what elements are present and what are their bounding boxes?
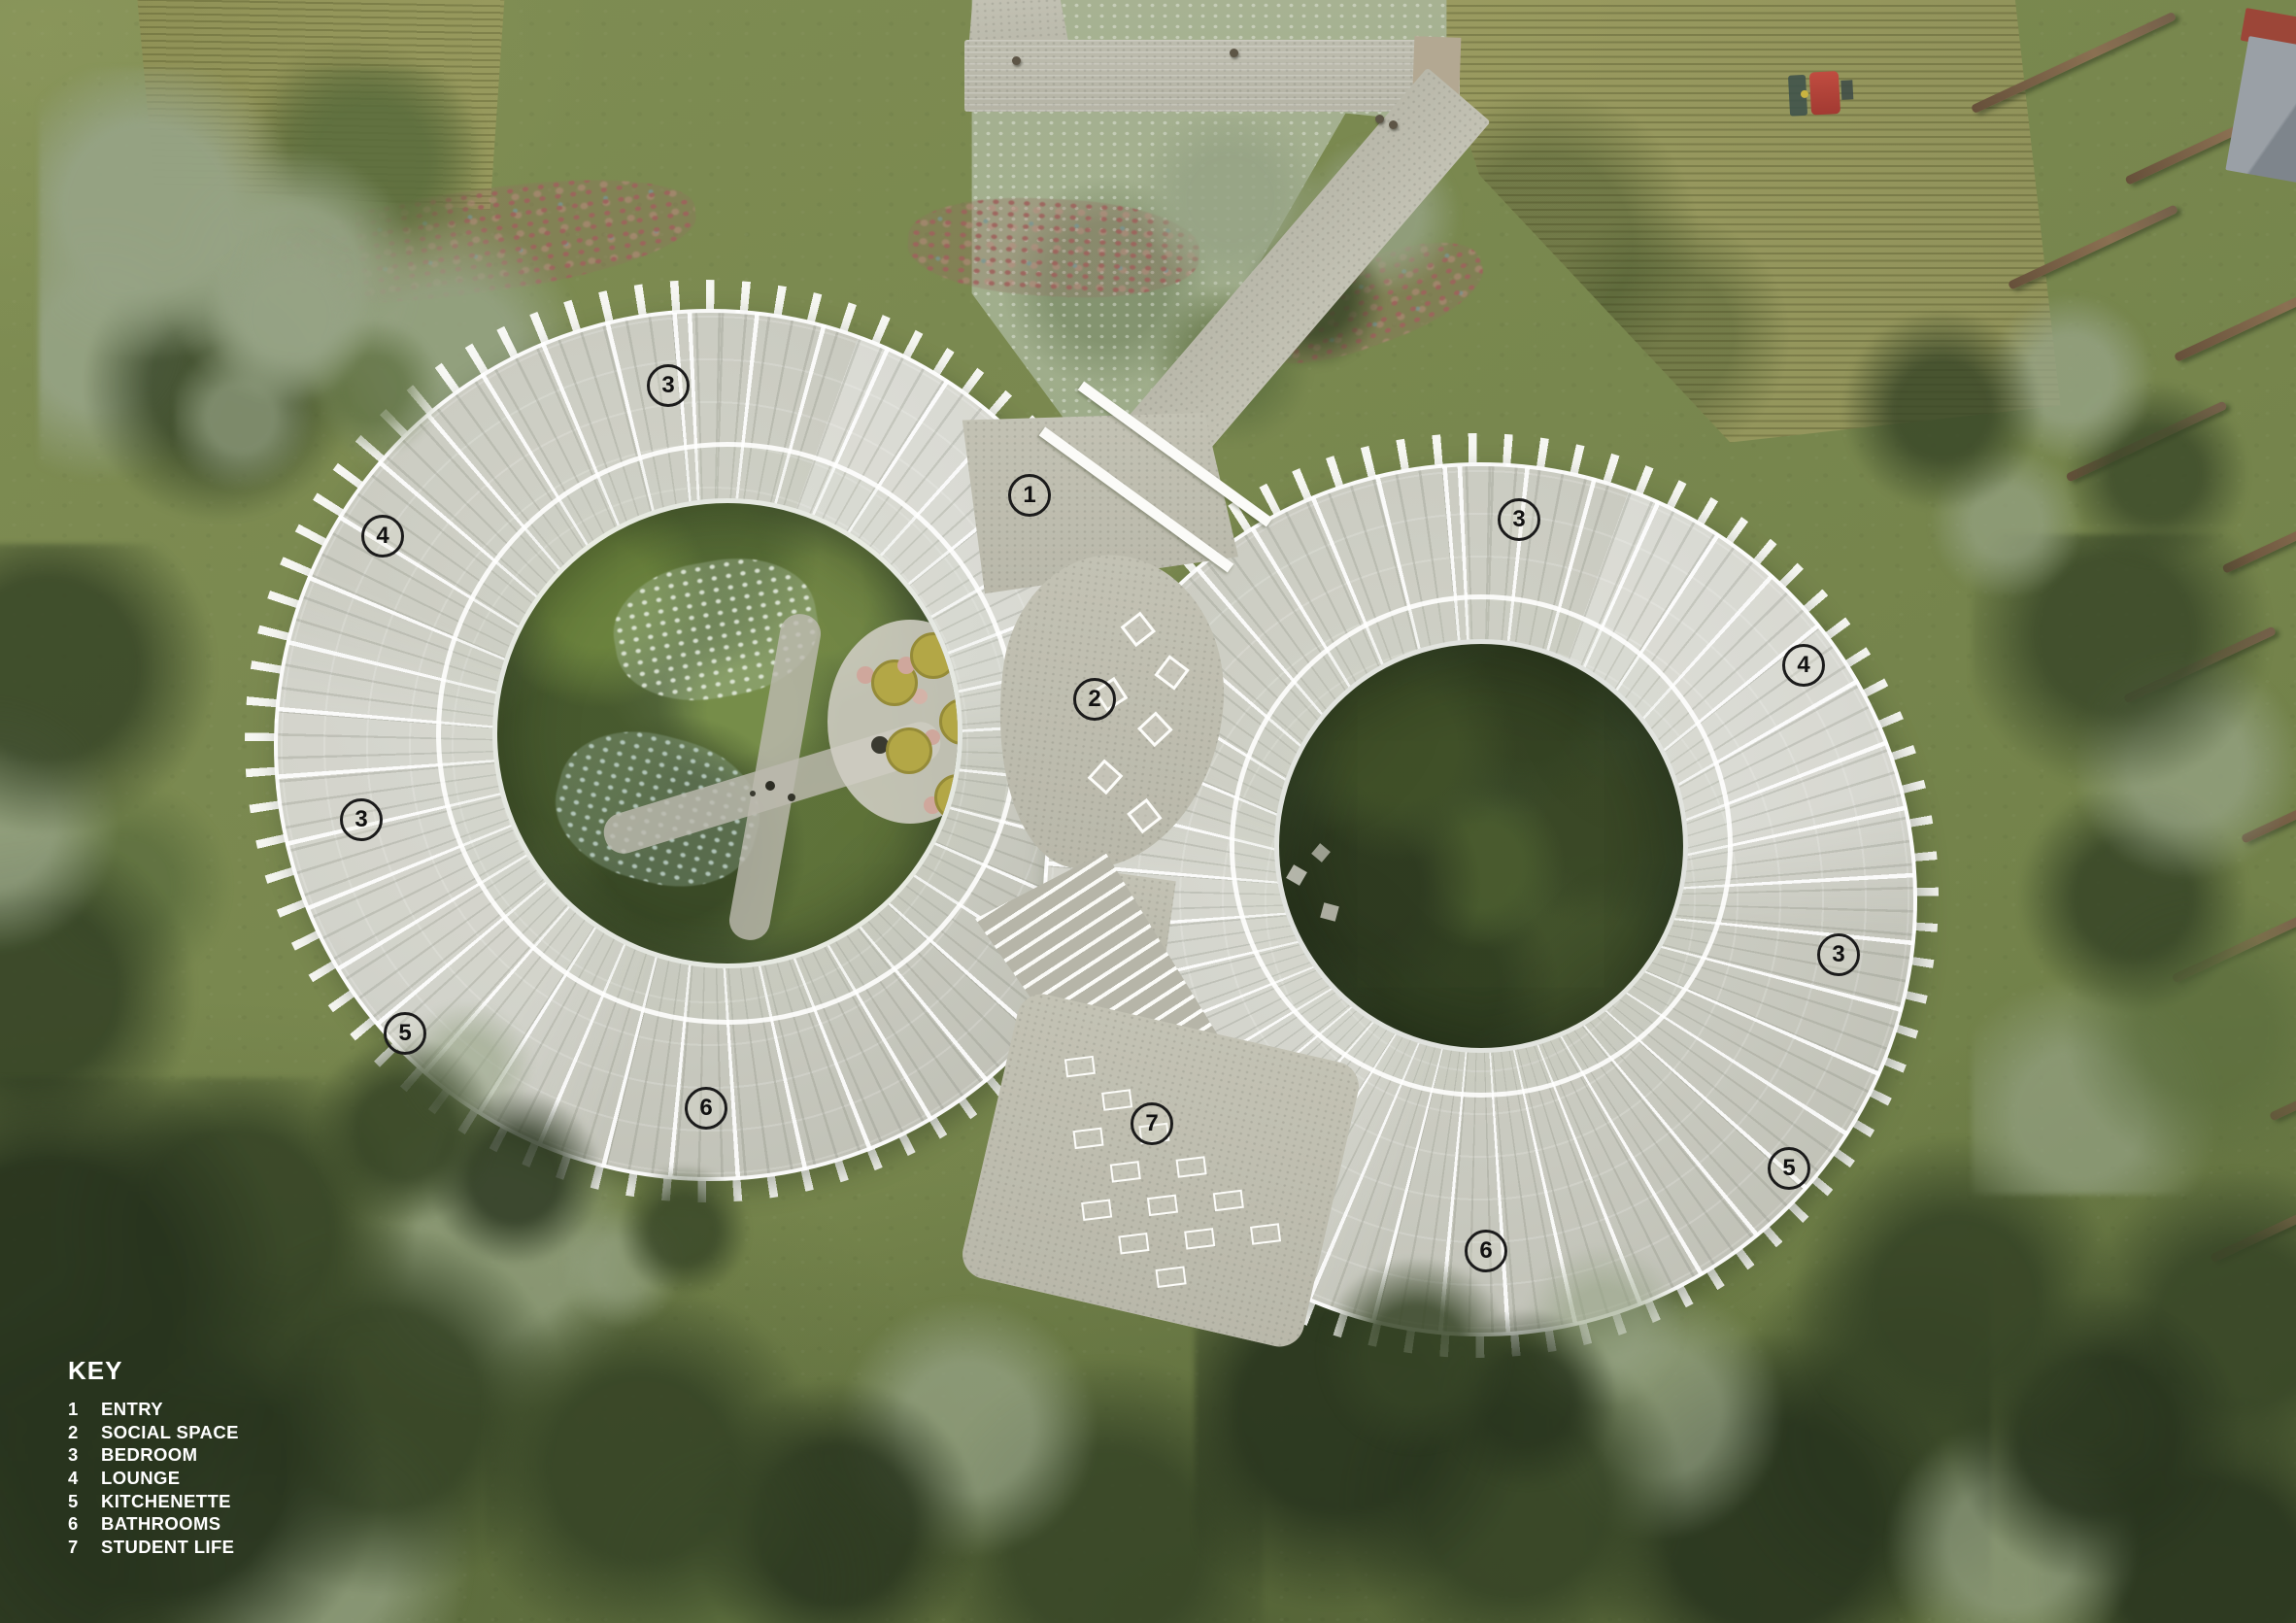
site-plan-rendering: 1 2 3 4 3 5 6 7 3 4 3 5 6 KEY 1 ENTRY 2 … bbox=[0, 0, 2296, 1623]
legend-row: 6 BATHROOMS bbox=[68, 1512, 239, 1536]
legend: KEY 1 ENTRY 2 SOCIAL SPACE 3 BEDROOM 4 L… bbox=[68, 1356, 239, 1559]
legend-label: STUDENT LIFE bbox=[101, 1537, 234, 1558]
furniture-mark bbox=[1072, 1128, 1103, 1150]
legend-label: LOUNGE bbox=[101, 1468, 181, 1489]
legend-label: BEDROOM bbox=[101, 1444, 197, 1466]
right-courtyard bbox=[1274, 639, 1688, 1053]
tractor bbox=[1784, 64, 1859, 124]
picnic-table bbox=[910, 632, 957, 679]
furniture-mark bbox=[1156, 1266, 1187, 1288]
legend-number: 5 bbox=[68, 1491, 101, 1512]
plan-marker-lounge: 4 bbox=[1782, 644, 1825, 687]
furniture-mark bbox=[1250, 1223, 1281, 1245]
legend-label: SOCIAL SPACE bbox=[101, 1422, 239, 1443]
picnic-table bbox=[871, 659, 918, 706]
legend-row: 7 STUDENT LIFE bbox=[68, 1536, 239, 1559]
plan-marker-bedroom: 3 bbox=[1817, 933, 1860, 976]
furniture-mark bbox=[1137, 711, 1173, 747]
plan-marker-kitchenette: 5 bbox=[384, 1012, 426, 1055]
legend-number: 1 bbox=[68, 1399, 101, 1420]
roof-gray-section bbox=[2225, 36, 2296, 188]
person-dot bbox=[1389, 120, 1398, 129]
furniture-mark bbox=[1127, 798, 1162, 833]
legend-row: 5 KITCHENETTE bbox=[68, 1490, 239, 1513]
legend-row: 4 LOUNGE bbox=[68, 1467, 239, 1490]
furniture-mark bbox=[1147, 1195, 1178, 1217]
furniture-mark bbox=[1154, 655, 1189, 690]
tree-overlap-right-ring-s bbox=[1282, 1224, 1729, 1515]
furniture-mark bbox=[1213, 1190, 1244, 1212]
legend-row: 2 SOCIAL SPACE bbox=[68, 1421, 239, 1444]
furniture-mark bbox=[1081, 1199, 1112, 1221]
plan-marker-entry: 1 bbox=[1008, 474, 1051, 517]
tractor-body bbox=[1809, 71, 1840, 116]
person-dot bbox=[765, 781, 775, 791]
courtyard-furniture bbox=[1311, 843, 1331, 862]
courtyard-furniture bbox=[1286, 864, 1307, 886]
tree-cluster-ne-of-right-ring bbox=[1836, 282, 2263, 602]
plan-marker-lounge: 4 bbox=[361, 515, 404, 558]
tractor-arm bbox=[1840, 80, 1853, 100]
furniture-mark bbox=[1121, 612, 1156, 647]
furniture-mark bbox=[1110, 1161, 1141, 1183]
legend-number: 3 bbox=[68, 1444, 101, 1466]
legend-row: 3 BEDROOM bbox=[68, 1443, 239, 1467]
tree-cluster-right-edge bbox=[1972, 534, 2296, 1195]
plan-marker-bedroom: 3 bbox=[1498, 498, 1540, 541]
legend-row: 1 ENTRY bbox=[68, 1398, 239, 1421]
plan-marker-kitchenette: 5 bbox=[1768, 1147, 1810, 1190]
person-dot bbox=[1012, 56, 1021, 65]
legend-label: BATHROOMS bbox=[101, 1513, 221, 1535]
plan-marker-bathrooms: 6 bbox=[1465, 1230, 1507, 1272]
path-horizontal bbox=[964, 40, 1460, 112]
legend-number: 2 bbox=[68, 1422, 101, 1443]
plan-marker-social-space: 2 bbox=[1073, 678, 1116, 721]
furniture-mark bbox=[1184, 1228, 1215, 1250]
legend-number: 4 bbox=[68, 1468, 101, 1489]
furniture-mark bbox=[1088, 760, 1124, 795]
tractor-light bbox=[1801, 90, 1808, 98]
person-dot bbox=[1375, 115, 1384, 123]
furniture-mark bbox=[1176, 1156, 1207, 1178]
legend-title: KEY bbox=[68, 1356, 239, 1386]
tree-cluster-corner-se bbox=[1787, 1136, 2296, 1623]
person-dot bbox=[1230, 49, 1238, 57]
furniture-mark bbox=[1118, 1233, 1149, 1255]
left-courtyard bbox=[492, 498, 962, 968]
tree-overlap-ring-nw bbox=[175, 214, 505, 505]
legend-label: ENTRY bbox=[101, 1399, 163, 1420]
plan-marker-bedroom: 3 bbox=[340, 798, 383, 841]
legend-number: 6 bbox=[68, 1513, 101, 1535]
plan-marker-student-life: 7 bbox=[1131, 1102, 1173, 1145]
legend-number: 7 bbox=[68, 1537, 101, 1558]
tree-overlap-ring-s bbox=[544, 1117, 855, 1369]
picnic-table bbox=[886, 727, 932, 774]
courtyard-furniture bbox=[1320, 902, 1339, 922]
plan-marker-bedroom: 3 bbox=[647, 364, 690, 407]
furniture-mark bbox=[1064, 1056, 1096, 1078]
legend-label: KITCHENETTE bbox=[101, 1491, 231, 1512]
furniture-mark bbox=[1101, 1089, 1132, 1111]
plan-marker-bathrooms: 6 bbox=[685, 1087, 727, 1130]
